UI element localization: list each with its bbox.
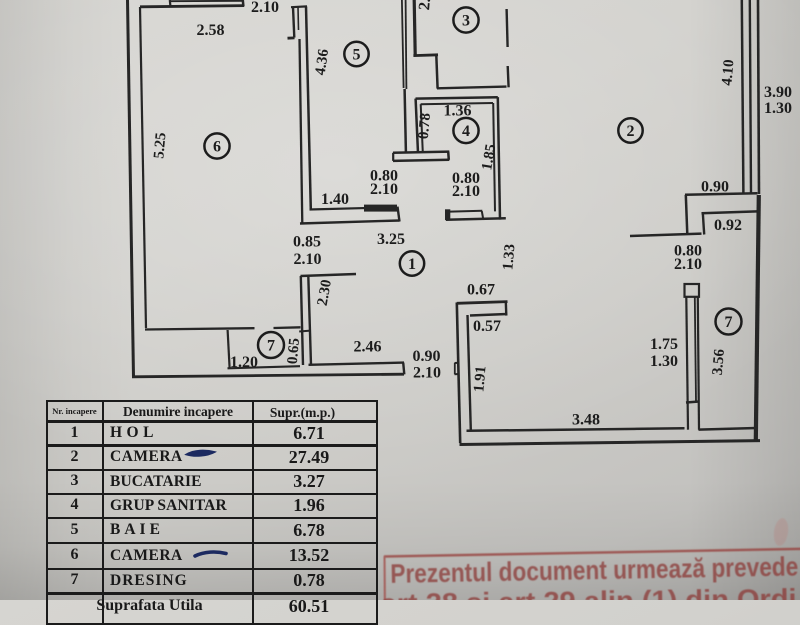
- svg-text:1: 1: [408, 256, 416, 273]
- svg-text:2.10: 2.10: [674, 256, 702, 273]
- svg-text:2.10: 2.10: [452, 183, 480, 200]
- svg-text:1.36: 1.36: [444, 102, 472, 119]
- svg-text:3.48: 3.48: [572, 411, 600, 428]
- svg-text:0.78: 0.78: [416, 112, 434, 140]
- svg-text:0.92: 0.92: [714, 217, 742, 234]
- svg-text:1.85: 1.85: [479, 143, 499, 172]
- svg-text:2.30: 2.30: [315, 278, 335, 307]
- svg-text:1.40: 1.40: [321, 191, 349, 208]
- svg-text:2: 2: [627, 123, 635, 140]
- svg-text:2.10: 2.10: [370, 181, 398, 198]
- svg-text:2.10: 2.10: [294, 251, 322, 268]
- svg-text:4.36: 4.36: [313, 48, 333, 77]
- svg-text:1.20: 1.20: [230, 354, 258, 371]
- svg-text:2.46: 2.46: [354, 338, 382, 355]
- svg-text:2.10: 2.10: [251, 0, 279, 16]
- svg-text:3.25: 3.25: [377, 231, 405, 248]
- svg-text:3.56: 3.56: [710, 348, 728, 376]
- svg-text:7: 7: [725, 314, 733, 331]
- svg-text:2.58: 2.58: [197, 22, 225, 39]
- svg-text:4.10: 4.10: [719, 59, 737, 87]
- svg-text:0.65: 0.65: [285, 337, 303, 365]
- svg-text:0.57: 0.57: [473, 318, 501, 335]
- svg-text:1.91: 1.91: [471, 365, 489, 393]
- svg-text:7: 7: [267, 338, 275, 355]
- svg-text:4: 4: [462, 123, 470, 140]
- svg-text:0.90: 0.90: [701, 178, 729, 195]
- svg-text:1.75: 1.75: [650, 336, 678, 353]
- svg-text:5.25: 5.25: [151, 132, 169, 160]
- svg-text:2.10: 2.10: [416, 0, 435, 11]
- svg-text:3.90: 3.90: [764, 84, 792, 101]
- svg-text:2.10: 2.10: [413, 364, 441, 381]
- svg-text:1.30: 1.30: [650, 353, 678, 370]
- svg-text:0.85: 0.85: [293, 233, 321, 250]
- svg-text:1.33: 1.33: [500, 243, 518, 271]
- svg-text:0.67: 0.67: [467, 281, 495, 298]
- svg-text:0.90: 0.90: [413, 348, 441, 365]
- svg-text:3: 3: [462, 13, 470, 30]
- svg-text:5: 5: [353, 47, 361, 64]
- svg-text:1.30: 1.30: [764, 100, 792, 117]
- svg-text:6: 6: [213, 139, 221, 156]
